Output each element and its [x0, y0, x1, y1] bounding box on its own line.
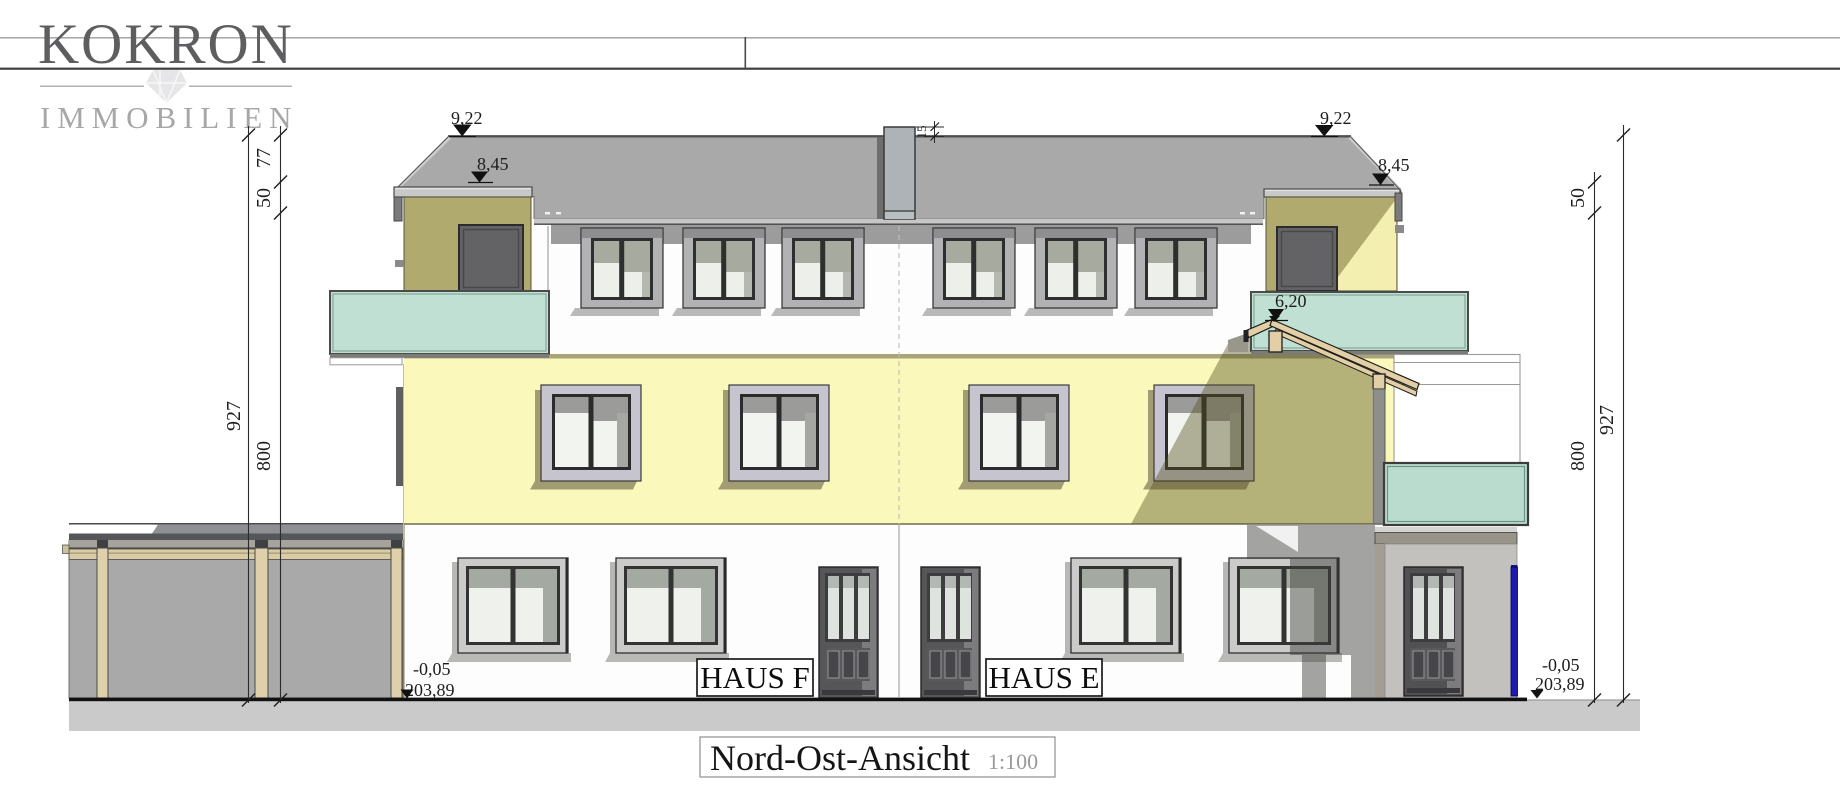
svg-text:8,45: 8,45: [1378, 155, 1410, 175]
svg-text:6,20: 6,20: [1275, 291, 1307, 311]
svg-text:927: 927: [223, 401, 245, 431]
svg-text:HAUS E: HAUS E: [988, 660, 1099, 695]
svg-text:800: 800: [1567, 441, 1589, 471]
svg-text:KOKRON: KOKRON: [38, 13, 294, 76]
svg-text:77: 77: [253, 148, 275, 168]
svg-text:50: 50: [253, 188, 275, 208]
svg-text:1:100: 1:100: [988, 749, 1038, 774]
svg-text:IMMOBILIEN: IMMOBILIEN: [40, 100, 298, 135]
svg-text:50: 50: [1567, 188, 1589, 208]
svg-text:8,45: 8,45: [477, 154, 509, 174]
svg-text:15: 15: [914, 126, 929, 139]
svg-text:800: 800: [253, 441, 275, 471]
svg-text:HAUS F: HAUS F: [700, 660, 809, 695]
svg-text:-0,05: -0,05: [1542, 655, 1580, 675]
svg-text:927: 927: [1596, 405, 1618, 435]
svg-text:-0,05: -0,05: [413, 659, 451, 679]
svg-text:Nord-Ost-Ansicht: Nord-Ost-Ansicht: [710, 738, 970, 778]
